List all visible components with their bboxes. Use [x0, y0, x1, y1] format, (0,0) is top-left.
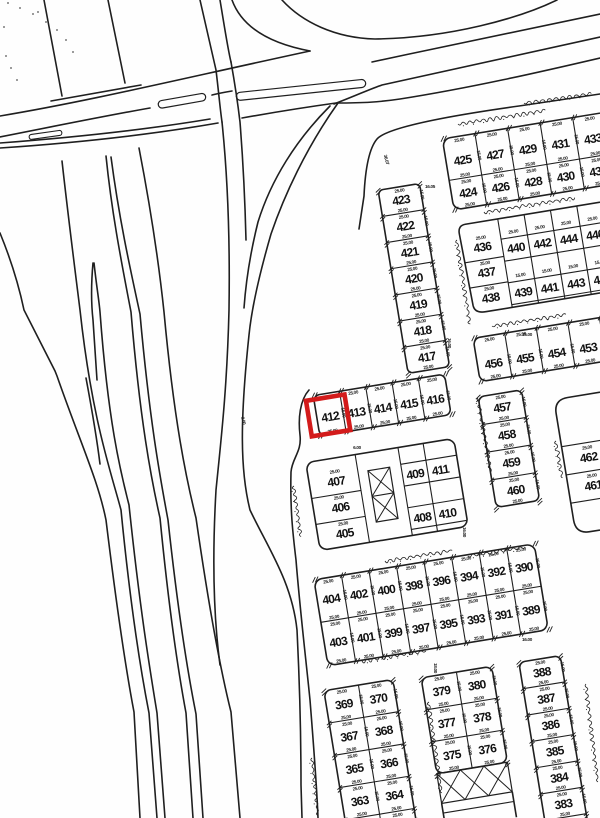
svg-text:454: 454: [547, 345, 568, 362]
svg-text:437: 437: [477, 264, 498, 281]
svg-text:376: 376: [477, 741, 498, 758]
svg-text:432: 432: [588, 163, 600, 180]
svg-text:363: 363: [350, 793, 371, 810]
svg-text:385: 385: [545, 743, 566, 760]
svg-text:456: 456: [484, 355, 505, 372]
svg-text:440: 440: [506, 239, 527, 256]
svg-text:16.00: 16.00: [447, 338, 452, 349]
svg-text:397: 397: [411, 620, 432, 637]
svg-text:414: 414: [373, 400, 394, 417]
svg-text:430: 430: [556, 168, 577, 185]
svg-text:445: 445: [592, 271, 600, 288]
svg-text:421: 421: [400, 244, 421, 261]
svg-text:442: 442: [532, 235, 553, 252]
svg-text:18.00: 18.00: [433, 663, 438, 674]
svg-text:398: 398: [404, 577, 425, 594]
svg-text:25.00: 25.00: [595, 180, 600, 187]
svg-text:396: 396: [431, 573, 452, 590]
svg-text:405: 405: [335, 525, 356, 542]
svg-text:402: 402: [349, 586, 370, 603]
svg-text:370: 370: [369, 690, 390, 707]
svg-text:433: 433: [583, 130, 600, 147]
svg-text:378: 378: [472, 709, 493, 726]
svg-text:461: 461: [583, 477, 600, 494]
svg-text:459: 459: [501, 454, 522, 471]
svg-text:369: 369: [334, 696, 355, 713]
svg-text:401: 401: [356, 629, 377, 646]
svg-text:418: 418: [413, 322, 434, 339]
svg-text:380: 380: [467, 677, 488, 694]
svg-text:377: 377: [437, 715, 458, 732]
svg-text:408: 408: [412, 509, 433, 526]
svg-text:383: 383: [554, 796, 575, 813]
svg-text:393: 393: [466, 611, 487, 628]
svg-text:389: 389: [521, 602, 542, 619]
svg-text:394: 394: [459, 568, 480, 585]
svg-text:404: 404: [321, 591, 342, 608]
svg-text:387: 387: [536, 690, 557, 707]
svg-text:384: 384: [549, 769, 570, 786]
svg-text:419: 419: [408, 296, 429, 313]
svg-text:428: 428: [523, 174, 544, 191]
svg-text:460: 460: [506, 482, 527, 499]
svg-text:364: 364: [384, 787, 405, 804]
svg-text:391: 391: [494, 606, 515, 623]
svg-text:415: 415: [399, 395, 420, 412]
svg-text:416: 416: [425, 391, 446, 408]
svg-text:379: 379: [432, 683, 453, 700]
svg-text:367: 367: [339, 728, 360, 745]
svg-text:388: 388: [532, 664, 553, 681]
svg-text:429: 429: [518, 141, 539, 158]
svg-text:16.00: 16.00: [462, 527, 467, 538]
svg-text:441: 441: [540, 279, 561, 296]
svg-text:446: 446: [585, 226, 600, 243]
svg-text:15.00: 15.00: [522, 332, 533, 337]
svg-text:16.00: 16.00: [522, 637, 533, 642]
svg-text:399: 399: [383, 624, 404, 641]
svg-text:420: 420: [404, 270, 425, 287]
svg-text:438: 438: [481, 289, 502, 306]
svg-text:443: 443: [566, 275, 587, 292]
svg-text:403: 403: [328, 633, 349, 650]
svg-text:427: 427: [485, 146, 506, 163]
svg-text:462: 462: [579, 449, 600, 466]
svg-text:457: 457: [492, 399, 513, 416]
svg-text:407: 407: [326, 473, 347, 490]
svg-text:386: 386: [541, 717, 562, 734]
svg-text:406: 406: [331, 499, 352, 516]
svg-text:15.00: 15.00: [594, 259, 600, 266]
svg-text:424: 424: [458, 184, 479, 201]
svg-text:426: 426: [491, 179, 512, 196]
svg-text:453: 453: [578, 340, 599, 357]
svg-text:390: 390: [514, 559, 535, 576]
svg-text:444: 444: [559, 231, 580, 248]
svg-text:431: 431: [550, 136, 571, 153]
svg-text:365: 365: [345, 760, 366, 777]
svg-text:409: 409: [405, 466, 426, 483]
svg-text:439: 439: [513, 284, 534, 301]
svg-text:375: 375: [442, 747, 463, 764]
svg-text:16.05: 16.05: [425, 184, 436, 189]
svg-text:395: 395: [438, 615, 459, 632]
svg-text:6.00: 6.00: [353, 445, 361, 450]
svg-text:400: 400: [376, 582, 397, 599]
svg-text:455: 455: [515, 350, 536, 367]
svg-text:423: 423: [391, 192, 412, 209]
svg-text:392: 392: [487, 563, 508, 580]
svg-text:411: 411: [431, 462, 451, 479]
svg-text:368: 368: [374, 722, 395, 739]
svg-text:412: 412: [320, 408, 341, 425]
svg-text:410: 410: [438, 505, 459, 522]
svg-text:458: 458: [497, 427, 518, 444]
svg-text:417: 417: [417, 349, 438, 366]
svg-text:425: 425: [453, 152, 474, 169]
svg-text:366: 366: [379, 755, 400, 772]
svg-text:422: 422: [395, 218, 416, 235]
